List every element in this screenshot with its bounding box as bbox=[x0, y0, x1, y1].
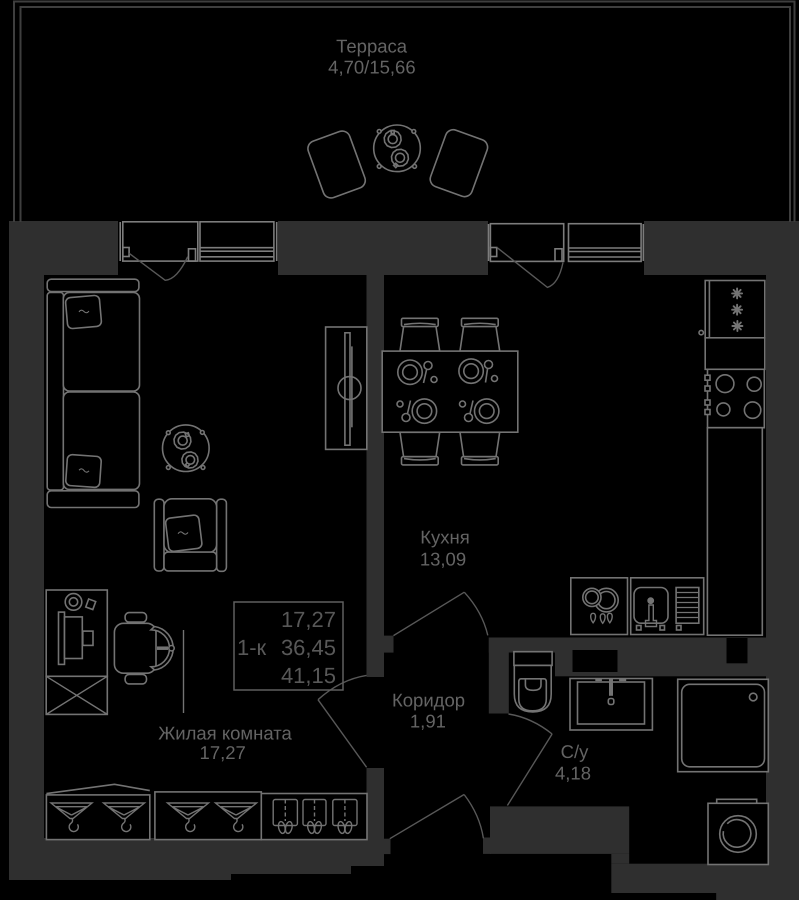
svg-text:13,09: 13,09 bbox=[420, 549, 466, 570]
svg-text:Коридор: Коридор bbox=[392, 690, 465, 711]
svg-text:Кухня: Кухня bbox=[420, 527, 470, 548]
svg-text:17,27: 17,27 bbox=[281, 607, 336, 632]
svg-text:4,70/15,66: 4,70/15,66 bbox=[328, 57, 415, 78]
svg-text:Жилая комната: Жилая комната bbox=[158, 723, 292, 744]
svg-text:1,91: 1,91 bbox=[410, 711, 446, 732]
svg-text:1-к: 1-к bbox=[237, 635, 267, 660]
svg-text:4,18: 4,18 bbox=[555, 763, 591, 784]
svg-text:17,27: 17,27 bbox=[200, 742, 246, 763]
svg-text:41,15: 41,15 bbox=[281, 663, 336, 688]
svg-text:36,45: 36,45 bbox=[281, 635, 336, 660]
svg-text:С/у: С/у bbox=[561, 741, 590, 762]
svg-text:Терраса: Терраса bbox=[336, 36, 408, 57]
